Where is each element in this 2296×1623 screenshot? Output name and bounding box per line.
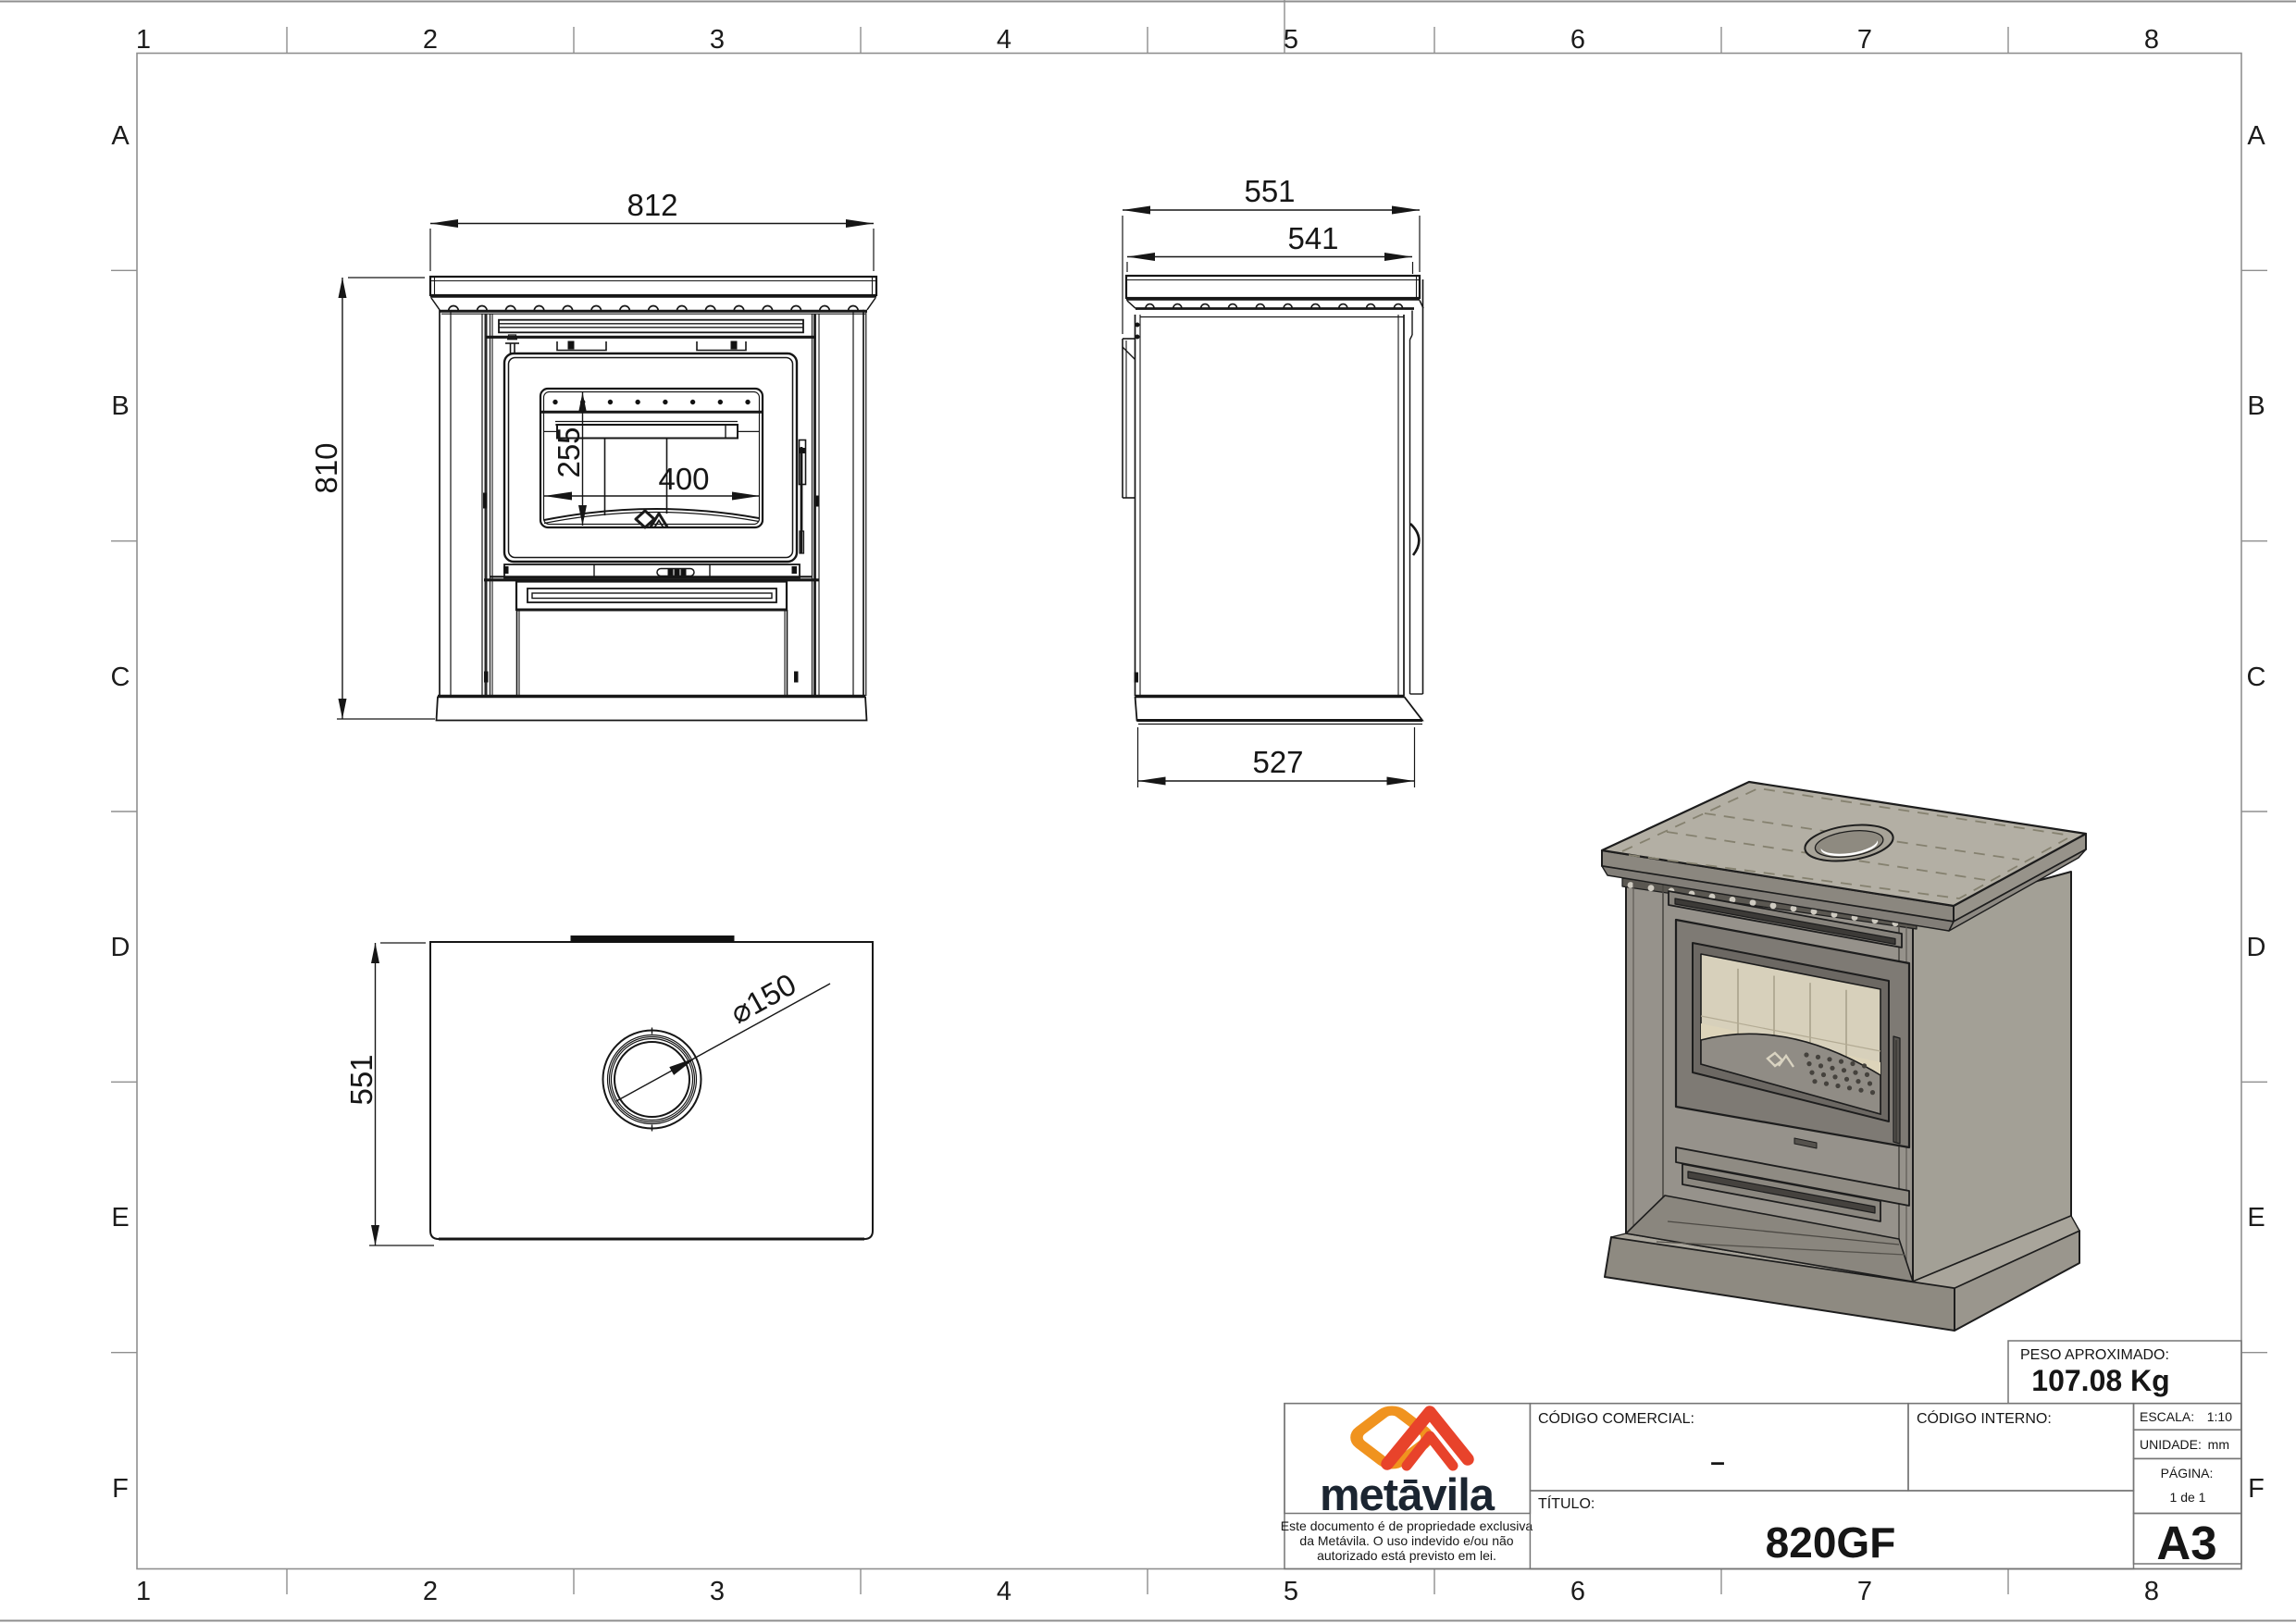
svg-text:mm: mm bbox=[2208, 1437, 2229, 1452]
svg-text:5: 5 bbox=[1284, 25, 1298, 55]
svg-text:6: 6 bbox=[1570, 1577, 1585, 1606]
svg-text:810: 810 bbox=[309, 442, 343, 493]
svg-text:2: 2 bbox=[423, 1577, 438, 1606]
svg-text:da Metávila. O uso indevido e/: da Metávila. O uso indevido e/ou não bbox=[1299, 1533, 1513, 1548]
svg-text:5: 5 bbox=[1284, 1577, 1298, 1606]
svg-text:7: 7 bbox=[1857, 1577, 1872, 1606]
svg-text:PÁGINA:: PÁGINA: bbox=[2161, 1466, 2214, 1481]
svg-text:CÓDIGO INTERNO:: CÓDIGO INTERNO: bbox=[1917, 1409, 2052, 1427]
svg-text:527: 527 bbox=[1252, 745, 1303, 779]
svg-text:541: 541 bbox=[1287, 221, 1338, 255]
svg-text:4: 4 bbox=[997, 25, 1011, 55]
svg-text:E: E bbox=[111, 1203, 129, 1233]
svg-text:7: 7 bbox=[1857, 25, 1872, 55]
svg-text:3: 3 bbox=[710, 1577, 725, 1606]
svg-text:D: D bbox=[2247, 933, 2266, 962]
svg-text:3: 3 bbox=[710, 25, 725, 55]
svg-text:551: 551 bbox=[344, 1054, 379, 1105]
svg-text:4: 4 bbox=[997, 1577, 1011, 1606]
svg-text:1: 1 bbox=[136, 1577, 151, 1606]
svg-text:D: D bbox=[111, 933, 130, 962]
svg-text:8: 8 bbox=[2144, 25, 2159, 55]
svg-text:–: – bbox=[1710, 1447, 1725, 1476]
svg-text:UNIDADE:: UNIDADE: bbox=[2140, 1437, 2202, 1452]
svg-text:A: A bbox=[2247, 121, 2265, 151]
svg-text:1 de 1: 1 de 1 bbox=[2170, 1490, 2206, 1505]
svg-text:A: A bbox=[111, 121, 130, 151]
svg-text:2: 2 bbox=[423, 25, 438, 55]
svg-text:TÍTULO:: TÍTULO: bbox=[1538, 1494, 1595, 1512]
svg-text:6: 6 bbox=[1570, 25, 1585, 55]
svg-text:1: 1 bbox=[136, 25, 151, 55]
svg-text:255: 255 bbox=[552, 427, 586, 477]
svg-text:8: 8 bbox=[2144, 1577, 2159, 1606]
svg-text:812: 812 bbox=[627, 188, 677, 222]
svg-text:F: F bbox=[2248, 1474, 2265, 1504]
svg-text:820GF: 820GF bbox=[1766, 1518, 1896, 1567]
svg-text:PESO APROXIMADO:: PESO APROXIMADO: bbox=[2020, 1347, 2169, 1363]
svg-text:E: E bbox=[2247, 1203, 2265, 1233]
svg-text:1:10: 1:10 bbox=[2207, 1409, 2232, 1424]
svg-text:autorizado está previsto em le: autorizado está previsto em lei. bbox=[1317, 1548, 1496, 1563]
svg-text:ESCALA:: ESCALA: bbox=[2140, 1409, 2194, 1424]
svg-text:400: 400 bbox=[658, 462, 709, 496]
svg-text:107.08 Kg: 107.08 Kg bbox=[2031, 1364, 2169, 1397]
svg-text:B: B bbox=[111, 391, 129, 421]
svg-text:B: B bbox=[2247, 391, 2265, 421]
svg-text:metāvila: metāvila bbox=[1320, 1470, 1496, 1520]
svg-text:551: 551 bbox=[1244, 174, 1295, 208]
svg-text:C: C bbox=[2247, 663, 2266, 692]
svg-text:A3: A3 bbox=[2156, 1517, 2216, 1569]
svg-text:CÓDIGO COMERCIAL:: CÓDIGO COMERCIAL: bbox=[1538, 1409, 1694, 1427]
svg-text:C: C bbox=[111, 663, 130, 692]
svg-text:F: F bbox=[112, 1474, 129, 1504]
svg-text:Este documento é de propriedad: Este documento é de propriedade exclusiv… bbox=[1281, 1518, 1533, 1533]
